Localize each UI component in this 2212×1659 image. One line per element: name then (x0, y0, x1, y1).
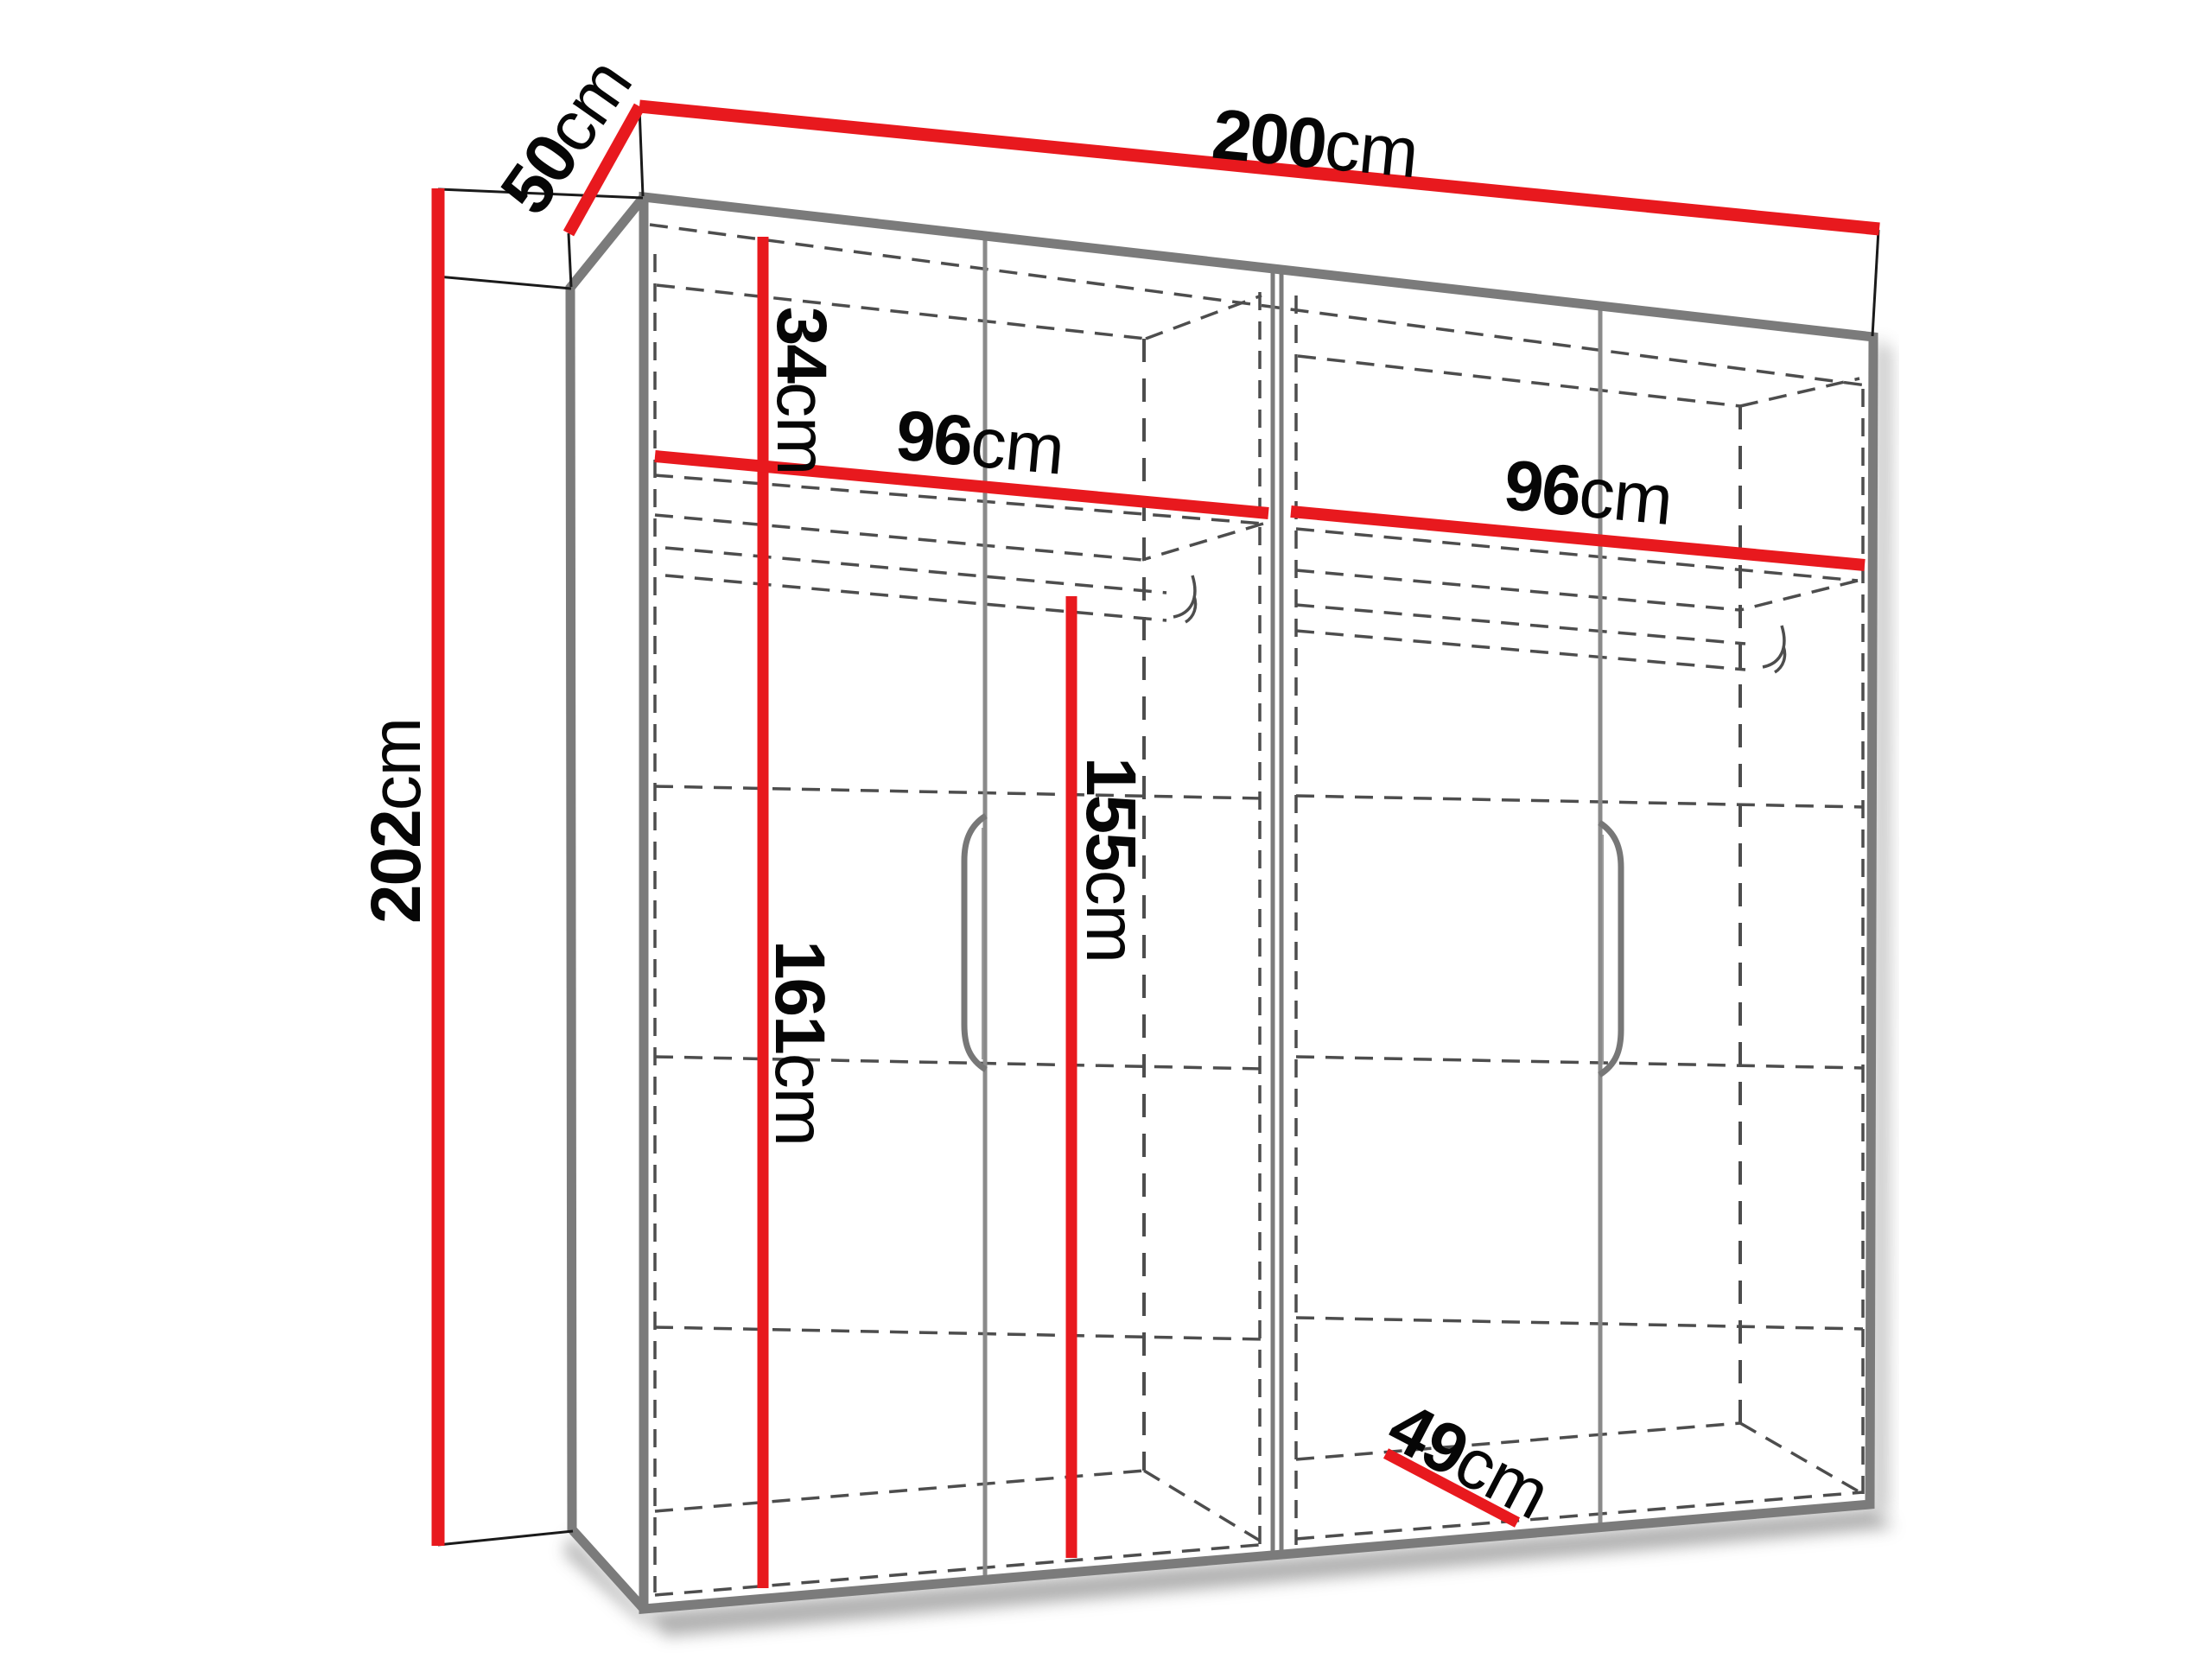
label-202cm: 202cm (357, 718, 435, 924)
wardrobe-dimension-diagram: 200cm 50cm 202cm 34cm 96cm 96cm 155cm 16… (0, 0, 2212, 1659)
label-34cm: 34cm (763, 307, 842, 475)
label-155cm: 155cm (1072, 757, 1151, 963)
label-96cm-left: 96cm (893, 396, 1067, 490)
label-96cm-right: 96cm (1501, 445, 1675, 539)
diagram-canvas: 200cm 50cm 202cm 34cm 96cm 96cm 155cm 16… (0, 0, 2212, 1659)
side-panel-face (570, 197, 644, 1609)
label-161cm: 161cm (761, 940, 840, 1146)
